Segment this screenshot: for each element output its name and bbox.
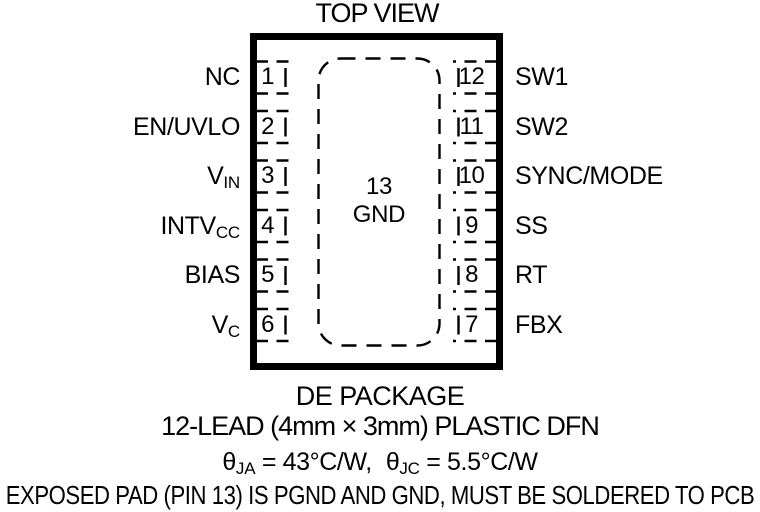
pin-label-7: FBX bbox=[515, 311, 760, 339]
pin-label-4: INTVCC bbox=[0, 212, 240, 240]
pin-number-12: 12 bbox=[458, 63, 485, 91]
exposed-pad-name: GND bbox=[318, 201, 440, 229]
pin-number-6: 6 bbox=[254, 311, 281, 339]
pin-number-8: 8 bbox=[458, 261, 485, 289]
pin-label-12: SW1 bbox=[515, 63, 760, 91]
pin-number-9: 9 bbox=[458, 212, 485, 240]
exposed-pad-label: 13 GND bbox=[318, 173, 440, 229]
pin-label-9: SS bbox=[515, 212, 760, 240]
pin-number-1: 1 bbox=[254, 63, 281, 91]
pin-number-7: 7 bbox=[458, 311, 485, 339]
pin-number-2: 2 bbox=[254, 113, 281, 141]
pin-label-2: EN/UVLO bbox=[0, 113, 240, 141]
pinout-figure: TOP VIEW NC EN/UVLO VIN INTVCC BIAS VC S… bbox=[0, 0, 760, 512]
pin-label-10: SYNC/MODE bbox=[515, 162, 760, 190]
pin-label-1: NC bbox=[0, 63, 240, 91]
pin-label-5: BIAS bbox=[0, 261, 240, 289]
pin-number-3: 3 bbox=[254, 162, 281, 190]
pin-label-3: VIN bbox=[0, 162, 240, 190]
package-name: DE PACKAGE bbox=[0, 381, 760, 412]
pin-number-4: 4 bbox=[254, 212, 281, 240]
exposed-pad-note: EXPOSED PAD (PIN 13) IS PGND AND GND, MU… bbox=[6, 480, 755, 511]
thermal-ratings: θJA = 43°C/W,θJC = 5.5°C/W bbox=[0, 448, 760, 477]
exposed-pad-number: 13 bbox=[318, 173, 440, 201]
pin-label-6: VC bbox=[0, 311, 240, 339]
pin-number-10: 10 bbox=[458, 162, 485, 190]
pin-number-5: 5 bbox=[254, 261, 281, 289]
pin-label-8: RT bbox=[515, 261, 760, 289]
pin-label-11: SW2 bbox=[515, 113, 760, 141]
figure-title: TOP VIEW bbox=[250, 0, 504, 26]
package-description: 12-LEAD (4mm × 3mm) PLASTIC DFN bbox=[0, 411, 760, 442]
pin-number-11: 11 bbox=[458, 113, 485, 141]
